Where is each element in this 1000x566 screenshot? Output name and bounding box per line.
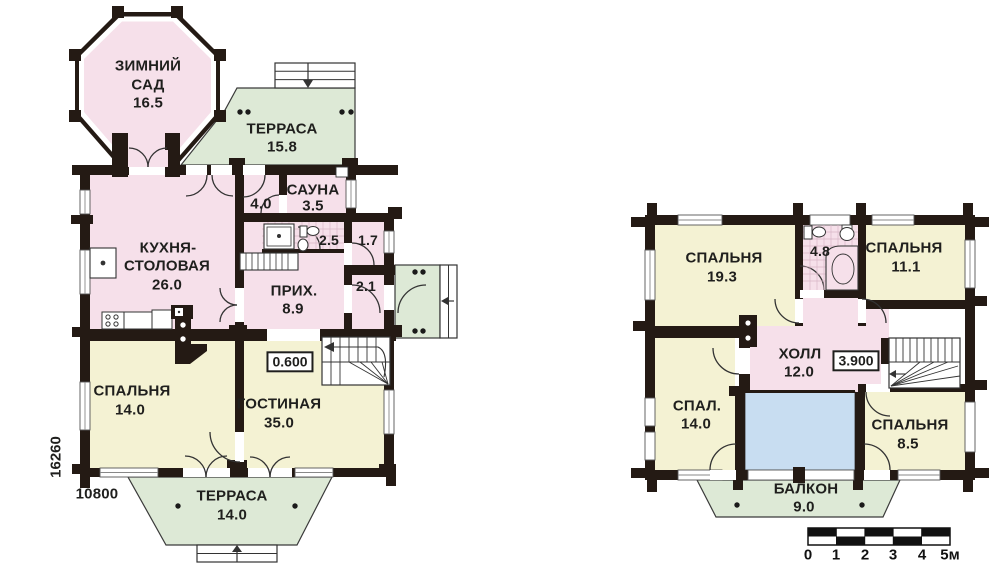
kitchen-area: 26.0 [152, 278, 182, 293]
bedroom1f-area: 14.0 [115, 403, 145, 418]
entry-porch-area [395, 265, 457, 338]
elevation-mark-second-floor: 3.900 [832, 350, 879, 371]
bathtub-icon [826, 246, 858, 290]
scale-tick-3: 3 [889, 547, 897, 564]
open-void-area [745, 392, 855, 470]
entry-area: 2.1 [356, 279, 376, 293]
stove-icon [102, 312, 124, 329]
bedroom-14-label: СПАЛ. [673, 399, 721, 414]
bedroom-85-area: 8.5 [897, 437, 918, 452]
terrace-top-steps-icon [275, 63, 355, 88]
scale-bar [808, 528, 950, 545]
elevation-mark-first-floor: 0.600 [266, 351, 313, 372]
kitchen-label: КУХНЯ- [140, 241, 197, 256]
washbasin-icon [840, 228, 854, 241]
terrace-top-area: 15.8 [267, 140, 297, 155]
room-40-area: 4.0 [250, 197, 271, 212]
terrace-bottom-label: ТЕРРАСА [196, 489, 267, 504]
counter-icon [124, 312, 152, 329]
second-floor-stairs-icon [889, 338, 960, 388]
bedroom-11-area: 11.1 [891, 260, 920, 275]
winter-garden-label: САД [131, 78, 164, 93]
bedroom-19-label: СПАЛЬНЯ [686, 251, 763, 266]
winter-garden-label: ЗИМНИЙ [115, 59, 181, 74]
balcony-label: БАЛКОН [774, 482, 839, 497]
wc-area: 2.5 [319, 233, 339, 247]
closet-area: 1.7 [358, 233, 378, 247]
first-floor-plan [69, 6, 457, 562]
dimension-width: 10800 [76, 487, 119, 502]
hallway-area: 8.9 [282, 302, 303, 317]
bedroom1f-label: СПАЛЬНЯ [94, 384, 171, 399]
dimension-height: 16260 [48, 436, 65, 478]
sauna-stove-icon [336, 167, 348, 177]
bedroom-85-label: СПАЛЬНЯ [872, 418, 949, 433]
bedroom-19-area: 19.3 [707, 270, 737, 285]
terrace-top-label: ТЕРРАСА [246, 122, 317, 137]
toilet-icon [804, 226, 812, 239]
sauna-area: 3.5 [302, 199, 323, 214]
living-room-label: ГОСТИНАЯ [237, 397, 321, 412]
toilet-icon [300, 226, 307, 237]
scale-tick-0: 0 [804, 547, 812, 564]
basement-stairs-icon [240, 253, 298, 270]
bath-area: 4.8 [810, 244, 830, 258]
winter-garden-area: 16.5 [133, 96, 163, 111]
kitchen-label: СТОЛОВАЯ [124, 259, 210, 274]
floor-plans-canvas: ЗИМНИЙ САД 16.5 ТЕРРАСА 15.8 4.0 САУНА 3… [0, 0, 1000, 566]
terrace-bottom-area: 14.0 [217, 508, 247, 523]
sauna-label: САУНА [287, 183, 340, 198]
scale-tick-4: 4 [918, 547, 926, 564]
living-room-area: 35.0 [264, 416, 294, 431]
bedroom-14-area: 14.0 [681, 417, 711, 432]
hall-label: ХОЛЛ [779, 347, 822, 362]
first-floor-stairs-icon [322, 337, 390, 385]
hallway-label: ПРИХ. [271, 284, 318, 299]
balcony-area: 9.0 [793, 500, 814, 515]
washbasin-icon [298, 239, 308, 251]
scale-tick-5: 5м [940, 547, 959, 564]
bedroom-11-label: СПАЛЬНЯ [866, 241, 943, 256]
second-floor-chimney-icon [739, 315, 757, 347]
scale-tick-2: 2 [861, 547, 869, 564]
hall-area: 12.0 [784, 365, 814, 380]
scale-tick-1: 1 [832, 547, 840, 564]
